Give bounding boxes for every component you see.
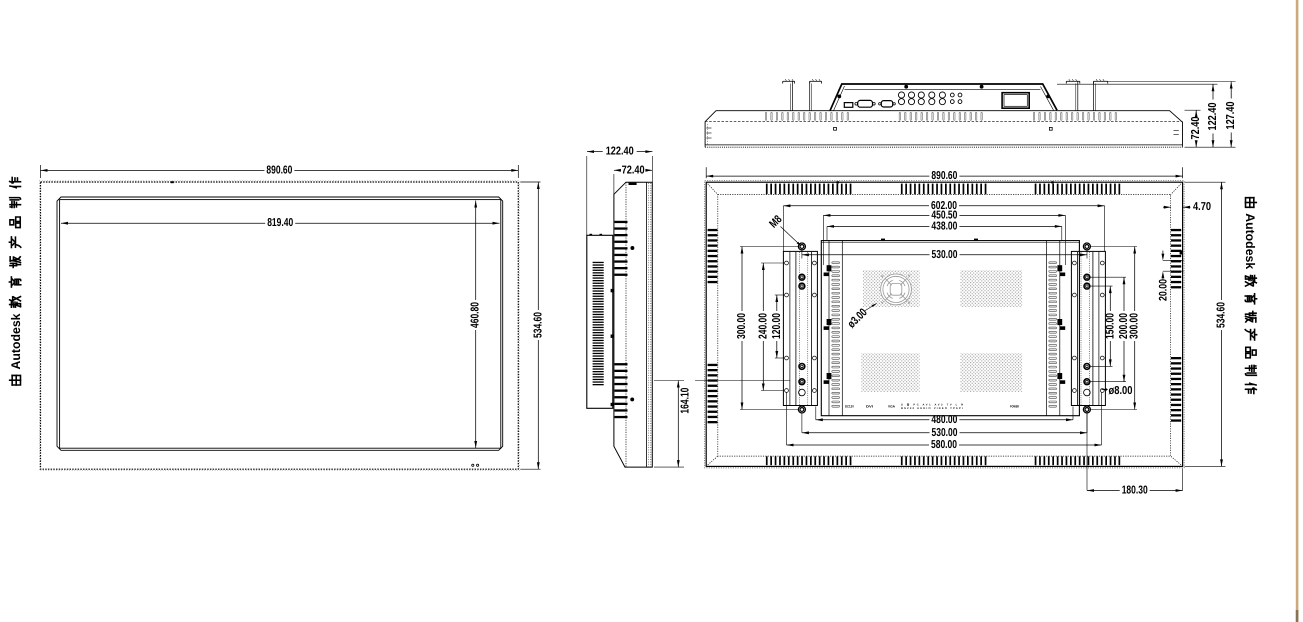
svg-text:164.10: 164.10 xyxy=(680,388,692,414)
svg-text:534.60: 534.60 xyxy=(532,312,544,338)
svg-text:122.40: 122.40 xyxy=(606,146,634,158)
svg-text:122.40: 122.40 xyxy=(1207,103,1219,131)
svg-text:438.00: 438.00 xyxy=(931,220,957,232)
svg-text:DC12V: DC12V xyxy=(845,405,855,409)
svg-text:890.60: 890.60 xyxy=(266,164,292,176)
svg-text:72.40: 72.40 xyxy=(622,164,645,176)
svg-text:580.00: 580.00 xyxy=(931,439,957,451)
svg-text:150.00: 150.00 xyxy=(1104,313,1116,339)
svg-text:S 音 PC AV1 AV2 TV L R: S 音 PC AV1 AV2 TV L R xyxy=(901,402,963,406)
svg-text:460.80: 460.80 xyxy=(470,302,482,328)
svg-text:POWER: POWER xyxy=(1010,405,1020,409)
svg-text:Autodesk: Autodesk xyxy=(9,313,23,369)
svg-text:890.60: 890.60 xyxy=(931,170,957,182)
svg-text:20.00: 20.00 xyxy=(1157,279,1169,301)
svg-text:530.00: 530.00 xyxy=(932,427,958,439)
svg-text:4.70: 4.70 xyxy=(1193,201,1211,213)
svg-text:300.00: 300.00 xyxy=(1129,313,1141,339)
svg-text:VGA: VGA xyxy=(888,405,896,409)
svg-text:127.40: 127.40 xyxy=(1225,102,1237,130)
svg-text:300.00: 300.00 xyxy=(736,313,748,339)
svg-text:DVI: DVI xyxy=(866,405,873,409)
svg-text:480.00: 480.00 xyxy=(931,414,957,426)
svg-text:72.40: 72.40 xyxy=(1190,117,1202,140)
svg-text:ø8.00: ø8.00 xyxy=(1109,385,1133,397)
svg-text:180.30: 180.30 xyxy=(1122,485,1148,497)
svg-text:530.00: 530.00 xyxy=(932,249,958,261)
svg-text:240.00: 240.00 xyxy=(757,313,769,339)
svg-text:Autodesk: Autodesk xyxy=(1243,213,1257,269)
svg-text:534.60: 534.60 xyxy=(1216,302,1228,328)
svg-text:120.00: 120.00 xyxy=(771,313,783,339)
svg-text:RS232 AUDIO VIDEO YPbPr: RS232 AUDIO VIDEO YPbPr xyxy=(901,407,963,410)
svg-text:819.40: 819.40 xyxy=(267,217,293,229)
